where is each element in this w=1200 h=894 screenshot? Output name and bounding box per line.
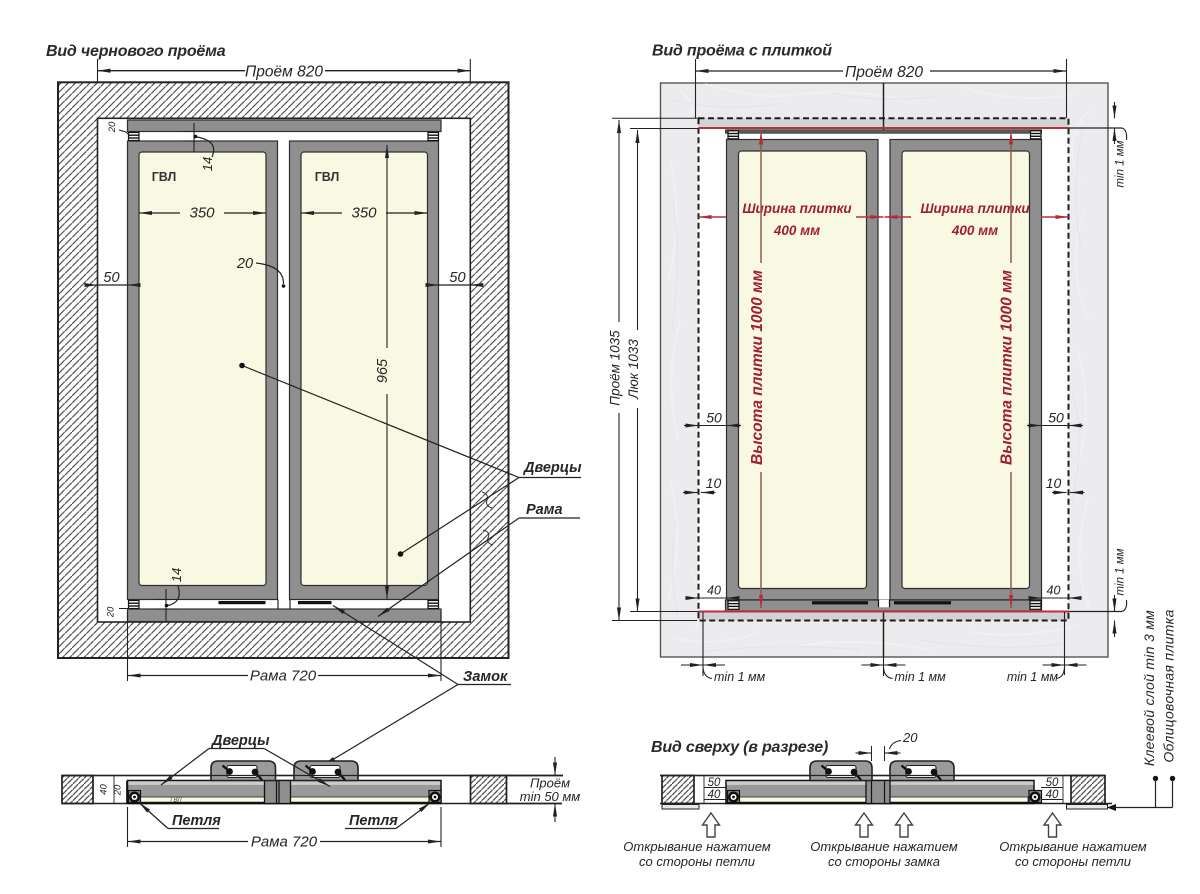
svg-text:50: 50	[708, 777, 721, 789]
svg-text:50: 50	[1046, 777, 1059, 789]
svg-text:350: 350	[189, 205, 215, 222]
svg-text:Проём 1035: Проём 1035	[608, 330, 623, 406]
svg-text:Облицовочная плитка: Облицовочная плитка	[1161, 609, 1177, 762]
svg-text:400 мм: 400 мм	[773, 223, 820, 238]
svg-text:40: 40	[708, 789, 721, 801]
svg-text:50: 50	[103, 270, 119, 286]
svg-text:ГВЛ: ГВЛ	[170, 798, 182, 804]
svg-text:min 1 мм: min 1 мм	[714, 670, 766, 684]
svg-text:Замок: Замок	[463, 669, 508, 685]
svg-text:10: 10	[706, 475, 722, 491]
svg-text:400 мм: 400 мм	[951, 223, 998, 238]
svg-text:Открывание нажатием: Открывание нажатием	[623, 839, 771, 854]
svg-text:14: 14	[200, 157, 215, 171]
svg-text:Клеевой слой min 3 мм: Клеевой слой min 3 мм	[1141, 610, 1157, 766]
svg-text:Петля: Петля	[349, 813, 398, 829]
svg-text:50: 50	[449, 270, 465, 286]
svg-text:со стороны замка: со стороны замка	[828, 854, 940, 869]
svg-text:Высота плитки 1000 мм: Высота плитки 1000 мм	[749, 270, 766, 465]
svg-text:20: 20	[902, 730, 918, 745]
svg-text:14: 14	[169, 568, 184, 582]
svg-text:Ширина плитки: Ширина плитки	[920, 201, 1030, 216]
svg-text:350: 350	[351, 205, 377, 222]
svg-text:Рама: Рама	[526, 502, 563, 518]
svg-text:Ширина плитки: Ширина плитки	[742, 201, 852, 216]
svg-text:50: 50	[1048, 410, 1064, 426]
svg-text:Вид сверху (в разрезе): Вид сверху (в разрезе)	[651, 739, 828, 756]
svg-text:20: 20	[106, 606, 117, 618]
svg-text:min 1 мм: min 1 мм	[895, 670, 947, 684]
svg-text:min 1 мм: min 1 мм	[1007, 670, 1059, 684]
svg-text:50: 50	[706, 410, 722, 426]
svg-text:20: 20	[107, 121, 118, 133]
svg-text:40: 40	[99, 784, 110, 795]
svg-text:ГВЛ: ГВЛ	[152, 170, 177, 184]
svg-text:Открывание нажатием: Открывание нажатием	[810, 839, 958, 854]
svg-text:Проём 820: Проём 820	[845, 64, 923, 81]
svg-text:min 1 мм: min 1 мм	[1115, 548, 1127, 595]
svg-text:ГВЛ: ГВЛ	[315, 170, 340, 184]
svg-text:Проём 820: Проём 820	[245, 64, 323, 81]
svg-text:20: 20	[113, 784, 124, 796]
svg-text:Вид чернового проёма: Вид чернового проёма	[46, 43, 226, 60]
svg-text:Вид проёма с плиткой: Вид проёма с плиткой	[652, 43, 832, 60]
svg-text:Дверцы: Дверцы	[522, 460, 582, 476]
svg-text:40: 40	[1046, 789, 1059, 801]
svg-text:со стороны петли: со стороны петли	[1015, 854, 1131, 869]
svg-text:965: 965	[375, 358, 391, 383]
svg-text:Высота плитки 1000 мм: Высота плитки 1000 мм	[999, 270, 1016, 465]
svg-text:40: 40	[707, 584, 721, 598]
svg-text:min 50 мм: min 50 мм	[520, 789, 581, 804]
svg-text:Рама 720: Рама 720	[250, 668, 317, 685]
svg-text:Дверцы: Дверцы	[210, 733, 270, 749]
svg-text:min 1 мм: min 1 мм	[1115, 140, 1127, 187]
svg-text:10: 10	[1046, 475, 1062, 491]
svg-text:Рама 720: Рама 720	[251, 834, 318, 851]
svg-text:Петля: Петля	[172, 813, 221, 829]
svg-text:со стороны петли: со стороны петли	[639, 854, 755, 869]
svg-text:Открывание нажатием: Открывание нажатием	[999, 839, 1147, 854]
svg-text:Люк 1033: Люк 1033	[626, 339, 641, 400]
svg-text:20: 20	[236, 256, 253, 272]
svg-text:40: 40	[1047, 584, 1061, 598]
